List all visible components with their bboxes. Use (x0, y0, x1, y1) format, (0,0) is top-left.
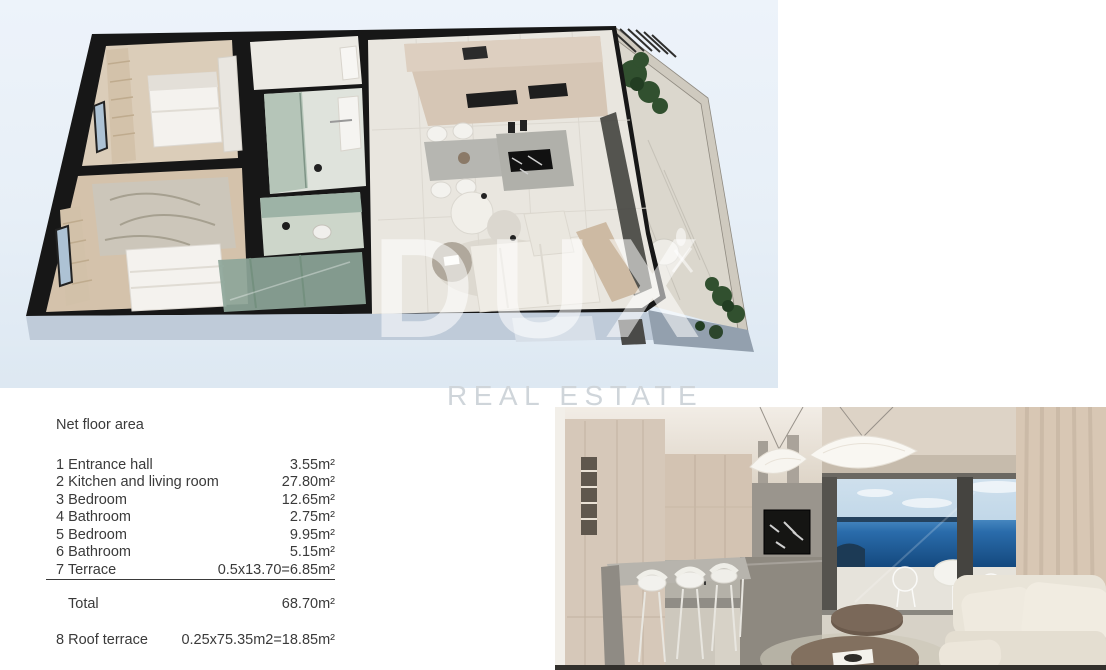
table-row: 2 Kitchen and living room27.80m² (46, 474, 335, 492)
floor-plan-drawing (0, 0, 778, 388)
listing-page: DUX REAL ESTATE Net floor area 1 Entranc… (0, 0, 1106, 670)
kitchen-cabinets (404, 36, 608, 126)
bathroom-2 (260, 192, 364, 256)
total-value: 68.70m² (282, 596, 335, 614)
room-area-value: 0.5x13.70=6.85m² (218, 562, 335, 580)
building-front-face (26, 310, 754, 352)
table-title: Net floor area (46, 417, 335, 435)
kitchen-living-room (368, 30, 660, 314)
roof-terrace-value: 0.25x75.35m2=18.85m² (181, 632, 335, 650)
bedroom-2 (46, 168, 248, 312)
floor-area-table: Net floor area 1 Entrance hall3.55m²2 Ki… (46, 417, 335, 649)
bathroom-1 (264, 88, 366, 194)
room-area-value: 3.55m² (290, 457, 335, 475)
sofa (938, 575, 1106, 670)
bedroom-1 (82, 40, 242, 166)
photo-bottom-edge (555, 665, 1106, 670)
room-area-value: 9.95m² (290, 527, 335, 545)
room-label: 5 Bedroom (56, 527, 127, 545)
coastline (837, 517, 957, 522)
room-area-value: 12.65m² (282, 492, 335, 510)
table-row: 3 Bedroom12.65m² (46, 492, 335, 510)
entrance-hall (250, 36, 362, 90)
room-label: 2 Kitchen and living room (56, 474, 219, 492)
room-label: 6 Bathroom (56, 544, 131, 562)
wall-artwork (764, 510, 810, 554)
table-row: 4 Bathroom2.75m² (46, 509, 335, 527)
room-label: 1 Entrance hall (56, 457, 153, 475)
floor-plan-image (0, 0, 778, 388)
open-shelves (581, 457, 597, 535)
rocks (837, 543, 865, 569)
table-row: 7 Terrace0.5x13.70=6.85m² (46, 562, 335, 581)
interior-render (555, 407, 1106, 670)
roof-terrace-row: 8 Roof terrace 0.25x75.35m2=18.85m² (46, 632, 335, 650)
room-label: 4 Bathroom (56, 509, 131, 527)
table-row: 6 Bathroom5.15m² (46, 544, 335, 562)
room-area-value: 5.15m² (290, 544, 335, 562)
bedroom-1-window (94, 102, 107, 152)
table-rows: 1 Entrance hall3.55m²2 Kitchen and livin… (46, 457, 335, 581)
roof-terrace-label: 8 Roof terrace (56, 632, 148, 650)
table-row: 1 Entrance hall3.55m² (46, 457, 335, 475)
room-label: 7 Terrace (56, 562, 116, 580)
bedroom-2-window (56, 226, 72, 286)
bathroom-glass-wall (218, 252, 366, 312)
total-label: Total (68, 596, 99, 614)
room-area-value: 27.80m² (282, 474, 335, 492)
room-area-value: 2.75m² (290, 509, 335, 527)
total-row: Total 68.70m² (46, 596, 335, 614)
bedroom-2-bed (126, 244, 226, 311)
room-label: 3 Bedroom (56, 492, 127, 510)
interior-photo (555, 407, 1106, 670)
table-row: 5 Bedroom9.95m² (46, 527, 335, 545)
kitchen-wall (665, 454, 752, 608)
